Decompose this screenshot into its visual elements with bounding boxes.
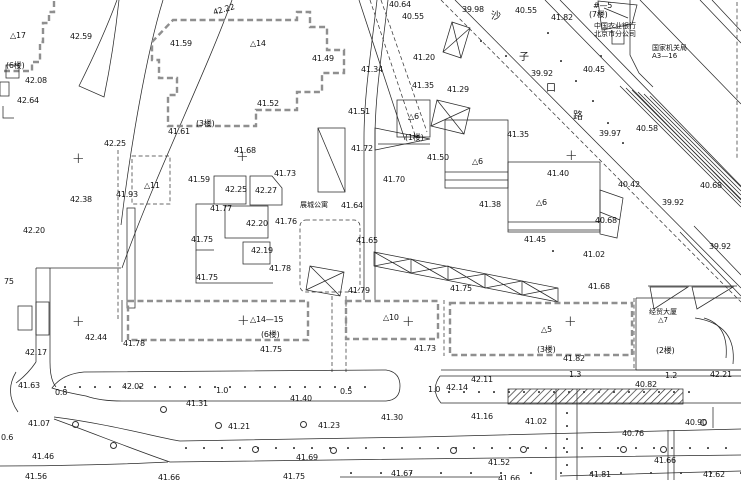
spot-elevation-label: 41.56 [25,473,47,480]
spot-elevation-label: 41.35 [507,131,529,139]
site-plan-canvas: 42.2242.5941.5942.0842.6442.2541.6141.49… [0,0,741,480]
spot-elevation-label: 40.68 [595,217,617,225]
street-tree-dot [440,472,442,474]
street-tree-dot [566,412,568,414]
street-tree-dot [347,447,349,449]
spot-elevation-label: 40.76 [622,430,644,438]
street-tree-dot [401,447,403,449]
street-tree-dot [221,447,223,449]
spot-elevation-label: 41.02 [525,418,547,426]
street-tree-dot [169,386,171,388]
tree-symbol [520,446,527,453]
spot-elevation-label: 39.98 [462,6,484,14]
spot-elevation-label: 39.92 [531,70,553,78]
street-tree-dot [566,438,568,440]
spot-elevation-label: 41.59 [170,40,192,48]
spot-elevation-label: 41.34 [361,66,383,74]
street-tree-dot [613,391,615,393]
street-tree-dot [493,391,495,393]
apartment-annotation-name: 展城公寓 [300,201,328,209]
spot-elevation-label: 41.62 [703,471,725,479]
spot-elevation-label: 41.78 [123,340,145,348]
tree-symbol [660,446,667,453]
spot-elevation-label: 41.20 [413,54,435,62]
plaza-annotation-line2: △7 [649,316,677,324]
building-14-outline [152,12,344,126]
tree-symbol [300,421,307,428]
street-tree-dot [109,386,111,388]
scatter-dot [560,60,562,62]
spot-elevation-label: 41.69 [296,454,318,462]
street-tree-dot [710,472,712,474]
tree-symbol [252,446,259,453]
spot-elevation-label: 42.08 [25,77,47,85]
spot-elevation-label: 41.51 [348,108,370,116]
spot-elevation-label: 42.64 [17,97,39,105]
survey-grid-cross: + [237,313,250,328]
spot-elevation-label: 40.58 [636,125,658,133]
spot-elevation-label: 42.38 [70,196,92,204]
building-number-label: △6 [472,158,483,166]
spot-elevation-label: 41.65 [356,237,378,245]
spot-elevation-label: 41.59 [188,176,210,184]
street-tree-dot [274,386,276,388]
tree-symbol [700,419,707,426]
street-tree-dot [650,472,652,474]
spot-elevation-label: 1.2 [665,372,677,380]
spot-elevation-label: 41.46 [32,453,54,461]
street-tree-dot [628,391,630,393]
building-number-label: #—5 [593,2,612,10]
road-name-character: 路 [573,112,583,122]
spot-elevation-label: 42.25 [225,186,247,194]
spot-elevation-label: 42.19 [251,247,273,255]
scatter-dot [480,40,482,42]
tree-symbol [620,446,627,453]
scatter-dot [547,32,549,34]
spot-elevation-label: 41.75 [260,346,282,354]
survey-grid-cross: + [236,149,249,164]
street-tree-dot [139,386,141,388]
spot-elevation-label: 40.64 [389,1,411,9]
spot-elevation-label: 41.07 [28,420,50,428]
spot-elevation-label: 1.3 [569,371,581,379]
spot-elevation-label: 41.16 [471,413,493,421]
street-tree-dot [620,472,622,474]
spot-elevation-label: 41.79 [348,287,370,295]
building-number-label: △17 [10,32,26,40]
street-tree-dot [530,472,532,474]
building-number-label: △11 [144,182,160,190]
spot-elevation-label: 41.75 [191,236,213,244]
street-tree-dot [566,464,568,466]
apartment-annotation: 展城公寓 [300,201,328,209]
street-tree-dot [350,472,352,474]
spot-elevation-label: 0.5 [340,388,352,396]
street-tree-dot [293,447,295,449]
plaza-annotation: 经贸大厦 △7 [649,308,677,324]
spot-elevation-label: 40.45 [583,66,605,74]
spot-elevation-label: 41.52 [488,459,510,467]
spot-elevation-label: 41.77 [210,205,232,213]
street-tree-dot [124,386,126,388]
survey-grid-cross: + [72,151,85,166]
building-number-label: (6楼) [6,62,25,70]
survey-grid-cross: + [565,148,578,163]
street-tree-dot [590,472,592,474]
spot-elevation-label: 41.52 [257,100,279,108]
street-tree-dot [658,391,660,393]
street-tree-dot [154,386,156,388]
street-tree-dot [568,391,570,393]
street-tree-dot [214,386,216,388]
gov-annotation-line2: A3—16 [652,52,687,60]
bank-annotation-line1: 中国农业银行 [594,22,636,30]
street-tree-dot [364,386,366,388]
spot-elevation-label: 39.97 [599,130,621,138]
scatter-dot [607,122,609,124]
spot-elevation-label: 41.76 [275,218,297,226]
spot-elevation-label: 41.75 [450,285,472,293]
tree-symbol [72,421,79,428]
road-name-character: 沙 [491,12,501,22]
road-name-character: 子 [519,53,529,63]
street-tree-dot [599,447,601,449]
building-number-label: △6 [408,113,419,121]
spot-elevation-label: 42.20 [246,220,268,228]
street-tree-dot [583,391,585,393]
scatter-dot [600,55,602,57]
spot-elevation-label: 42.44 [85,334,107,342]
building-number-label: (7楼) [589,11,608,19]
spot-elevation-label: 41.61 [168,128,190,136]
street-tree-dot [304,386,306,388]
street-tree-dot [419,447,421,449]
building-number-label: △14—15 [250,316,283,324]
spot-elevation-label: 41.35 [412,82,434,90]
building-number-label: (1楼) [405,134,424,142]
street-tree-dot [653,447,655,449]
street-tree-dot [509,447,511,449]
spot-elevation-label: 41.49 [312,55,334,63]
spot-elevation-label: 42.21 [710,371,732,379]
tree-symbol [330,447,337,454]
street-tree-dot [383,447,385,449]
spot-elevation-label: 41.63 [18,382,40,390]
street-tree-dot [275,447,277,449]
street-tree-dot [229,386,231,388]
bank-annotation-line2: 北京市分公司 [594,30,636,38]
scatter-dot [622,142,624,144]
spot-elevation-label: 39.92 [662,199,684,207]
street-tree-dot [560,472,562,474]
spot-elevation-label: 41.72 [351,145,373,153]
spot-elevation-label: 42.11 [471,376,493,384]
street-tree-dot [553,391,555,393]
street-tree-dot [463,391,465,393]
spot-elevation-label: 41.29 [447,86,469,94]
street-tree-dot [673,391,675,393]
street-tree-dot [563,447,565,449]
spot-elevation-label: 41.30 [381,414,403,422]
gov-annotation-line1: 国家机关局 [652,44,687,52]
spot-elevation-label: 41.82 [551,14,573,22]
tree-symbol [450,447,457,454]
street-tree-dot [349,386,351,388]
spot-elevation-label: 40.42 [618,181,640,189]
street-tree-dot [635,447,637,449]
street-tree-dot [199,386,201,388]
survey-grid-cross: + [72,314,85,329]
spot-elevation-label: 41.75 [196,274,218,282]
street-tree-dot [688,391,690,393]
spot-elevation-label: 41.38 [479,201,501,209]
building-number-label: △14 [250,40,266,48]
street-tree-dot [689,447,691,449]
spot-elevation-label: 1.0 [428,386,440,394]
spot-elevation-label: 40.82 [635,381,657,389]
bank-annotation: 中国农业银行 北京市分公司 [594,22,636,38]
scatter-dot [552,250,554,252]
street-tree-dot [545,447,547,449]
street-tree-dot [79,386,81,388]
street-tree-dot [491,447,493,449]
street-tree-dot [380,472,382,474]
spot-elevation-label: 75 [4,278,14,286]
crosswalk-hatch [508,389,683,404]
spot-elevation-label: 40.55 [515,7,537,15]
spot-elevation-label: 0.8 [55,389,67,397]
spot-elevation-label: 41.66 [158,474,180,480]
bottom-building-band [122,298,634,370]
plaza-block [636,286,741,370]
spot-elevation-label: 41.73 [274,170,296,178]
spot-elevation-label: 41.64 [341,202,363,210]
spot-elevation-label: 41.82 [563,355,585,363]
street-tree-dot [598,391,600,393]
street-tree-dot [334,386,336,388]
spot-elevation-label: 40.55 [402,13,424,21]
building-number-label: △6 [536,199,547,207]
road-name-character: 口 [546,84,556,94]
scatter-dot [592,100,594,102]
spot-elevation-label: 41.81 [589,471,611,479]
spot-elevation-label: 41.40 [547,170,569,178]
spot-elevation-label: 1.0 [216,387,228,395]
spot-elevation-label: 41.31 [186,400,208,408]
survey-grid-cross: + [402,314,415,329]
spot-elevation-label: 41.93 [116,191,138,199]
spot-elevation-label: 42.17 [25,349,47,357]
scatter-dot [505,55,507,57]
building-number-label: (2楼) [656,347,675,355]
plaza-annotation-line1: 经贸大厦 [649,308,677,316]
gov-annotation: 国家机关局 A3—16 [652,44,687,60]
building-number-label: (3楼) [537,346,556,354]
street-tree-dot [185,447,187,449]
street-tree-dot [311,447,313,449]
street-tree-dot [581,447,583,449]
spot-elevation-label: 42.25 [104,140,126,148]
street-tree-dot [566,451,568,453]
spot-elevation-label: 0.6 [1,434,13,442]
spot-elevation-label: 41.78 [269,265,291,273]
spot-elevation-label: 41.66 [654,457,676,465]
street-tree-dot [671,447,673,449]
street-tree-dot [184,386,186,388]
street-tree-dot [203,447,205,449]
building-number-label: △5 [541,326,552,334]
street-tree-dot [64,386,66,388]
street-tree-dot [259,386,261,388]
street-tree-dot [410,472,412,474]
street-tree-dot [500,472,502,474]
street-tree-dot [365,447,367,449]
street-tree-dot [448,391,450,393]
street-tree-dot [707,447,709,449]
tree-symbol [160,406,167,413]
building-number-label: △10 [383,314,399,322]
street-tree-dot [538,391,540,393]
spot-elevation-label: 41.02 [583,251,605,259]
building-number-label: (3楼) [196,120,215,128]
street-tree-dot [289,386,291,388]
spot-elevation-label: 41.45 [524,236,546,244]
spot-elevation-label: 42.20 [23,227,45,235]
street-tree-dot [508,391,510,393]
street-tree-dot [680,472,682,474]
spot-elevation-label: 41.68 [588,283,610,291]
street-tree-dot [478,391,480,393]
spot-elevation-label: 41.50 [427,154,449,162]
spot-elevation-label: 42.59 [70,33,92,41]
spot-elevation-label: 41.73 [414,345,436,353]
street-tree-dot [94,386,96,388]
spot-elevation-label: 41.70 [383,176,405,184]
spot-elevation-label: 41.75 [283,473,305,480]
street-tree-dot [566,425,568,427]
street-tree-dot [437,447,439,449]
street-tree-dot [523,391,525,393]
spot-elevation-label: 40.68 [700,182,722,190]
tree-symbol [215,422,222,429]
street-tree-dot [473,447,475,449]
building-number-label: (6楼) [261,331,280,339]
spot-elevation-label: 41.40 [290,395,312,403]
street-tree-dot [244,386,246,388]
tree-symbol [110,442,117,449]
street-tree-dot [470,472,472,474]
spot-elevation-label: 39.92 [709,243,731,251]
spot-elevation-label: 41.66 [498,475,520,480]
scatter-dot [575,80,577,82]
spot-elevation-label: 41.23 [318,422,340,430]
street-tree-dot [725,447,727,449]
survey-grid-cross: + [564,314,577,329]
street-tree-dot [527,447,529,449]
street-tree-dot [239,447,241,449]
spot-elevation-label: 41.21 [228,423,250,431]
street-tree-dot [643,391,645,393]
spot-elevation-label: 42.27 [255,187,277,195]
street-tree-dot [617,447,619,449]
street-tree-dot [319,386,321,388]
